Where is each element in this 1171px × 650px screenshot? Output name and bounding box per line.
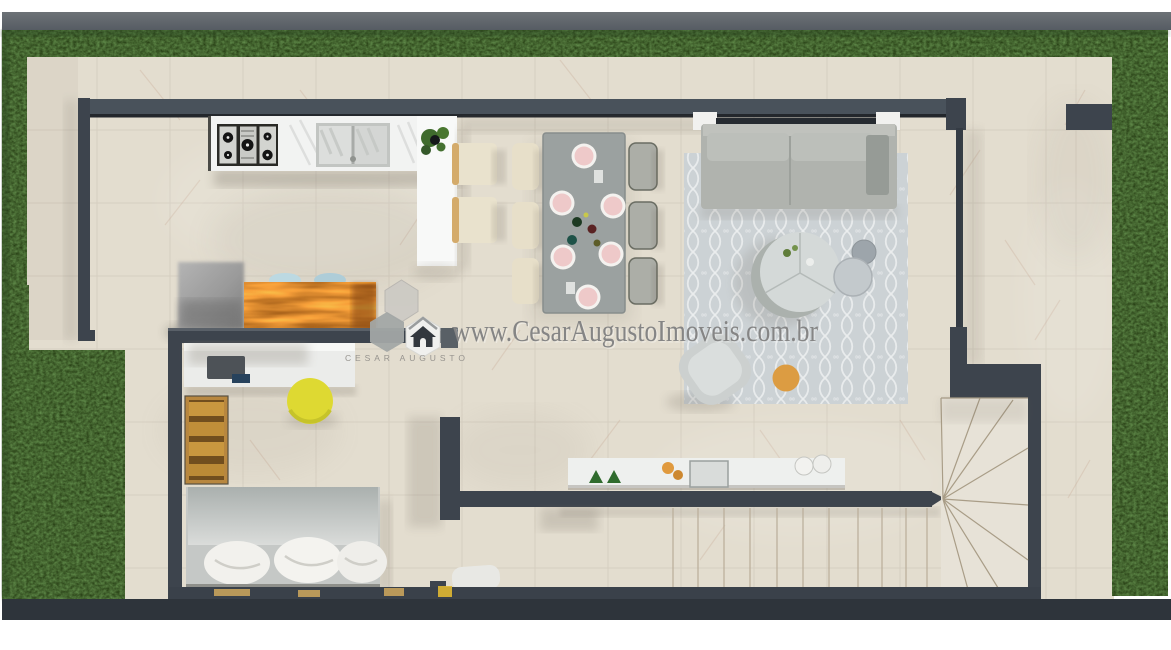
svg-text:www.CesarAugustoImoveis.com.br: www.CesarAugustoImoveis.com.br [452,313,819,348]
svg-text:CESAR AUGUSTO: CESAR AUGUSTO [345,353,468,363]
